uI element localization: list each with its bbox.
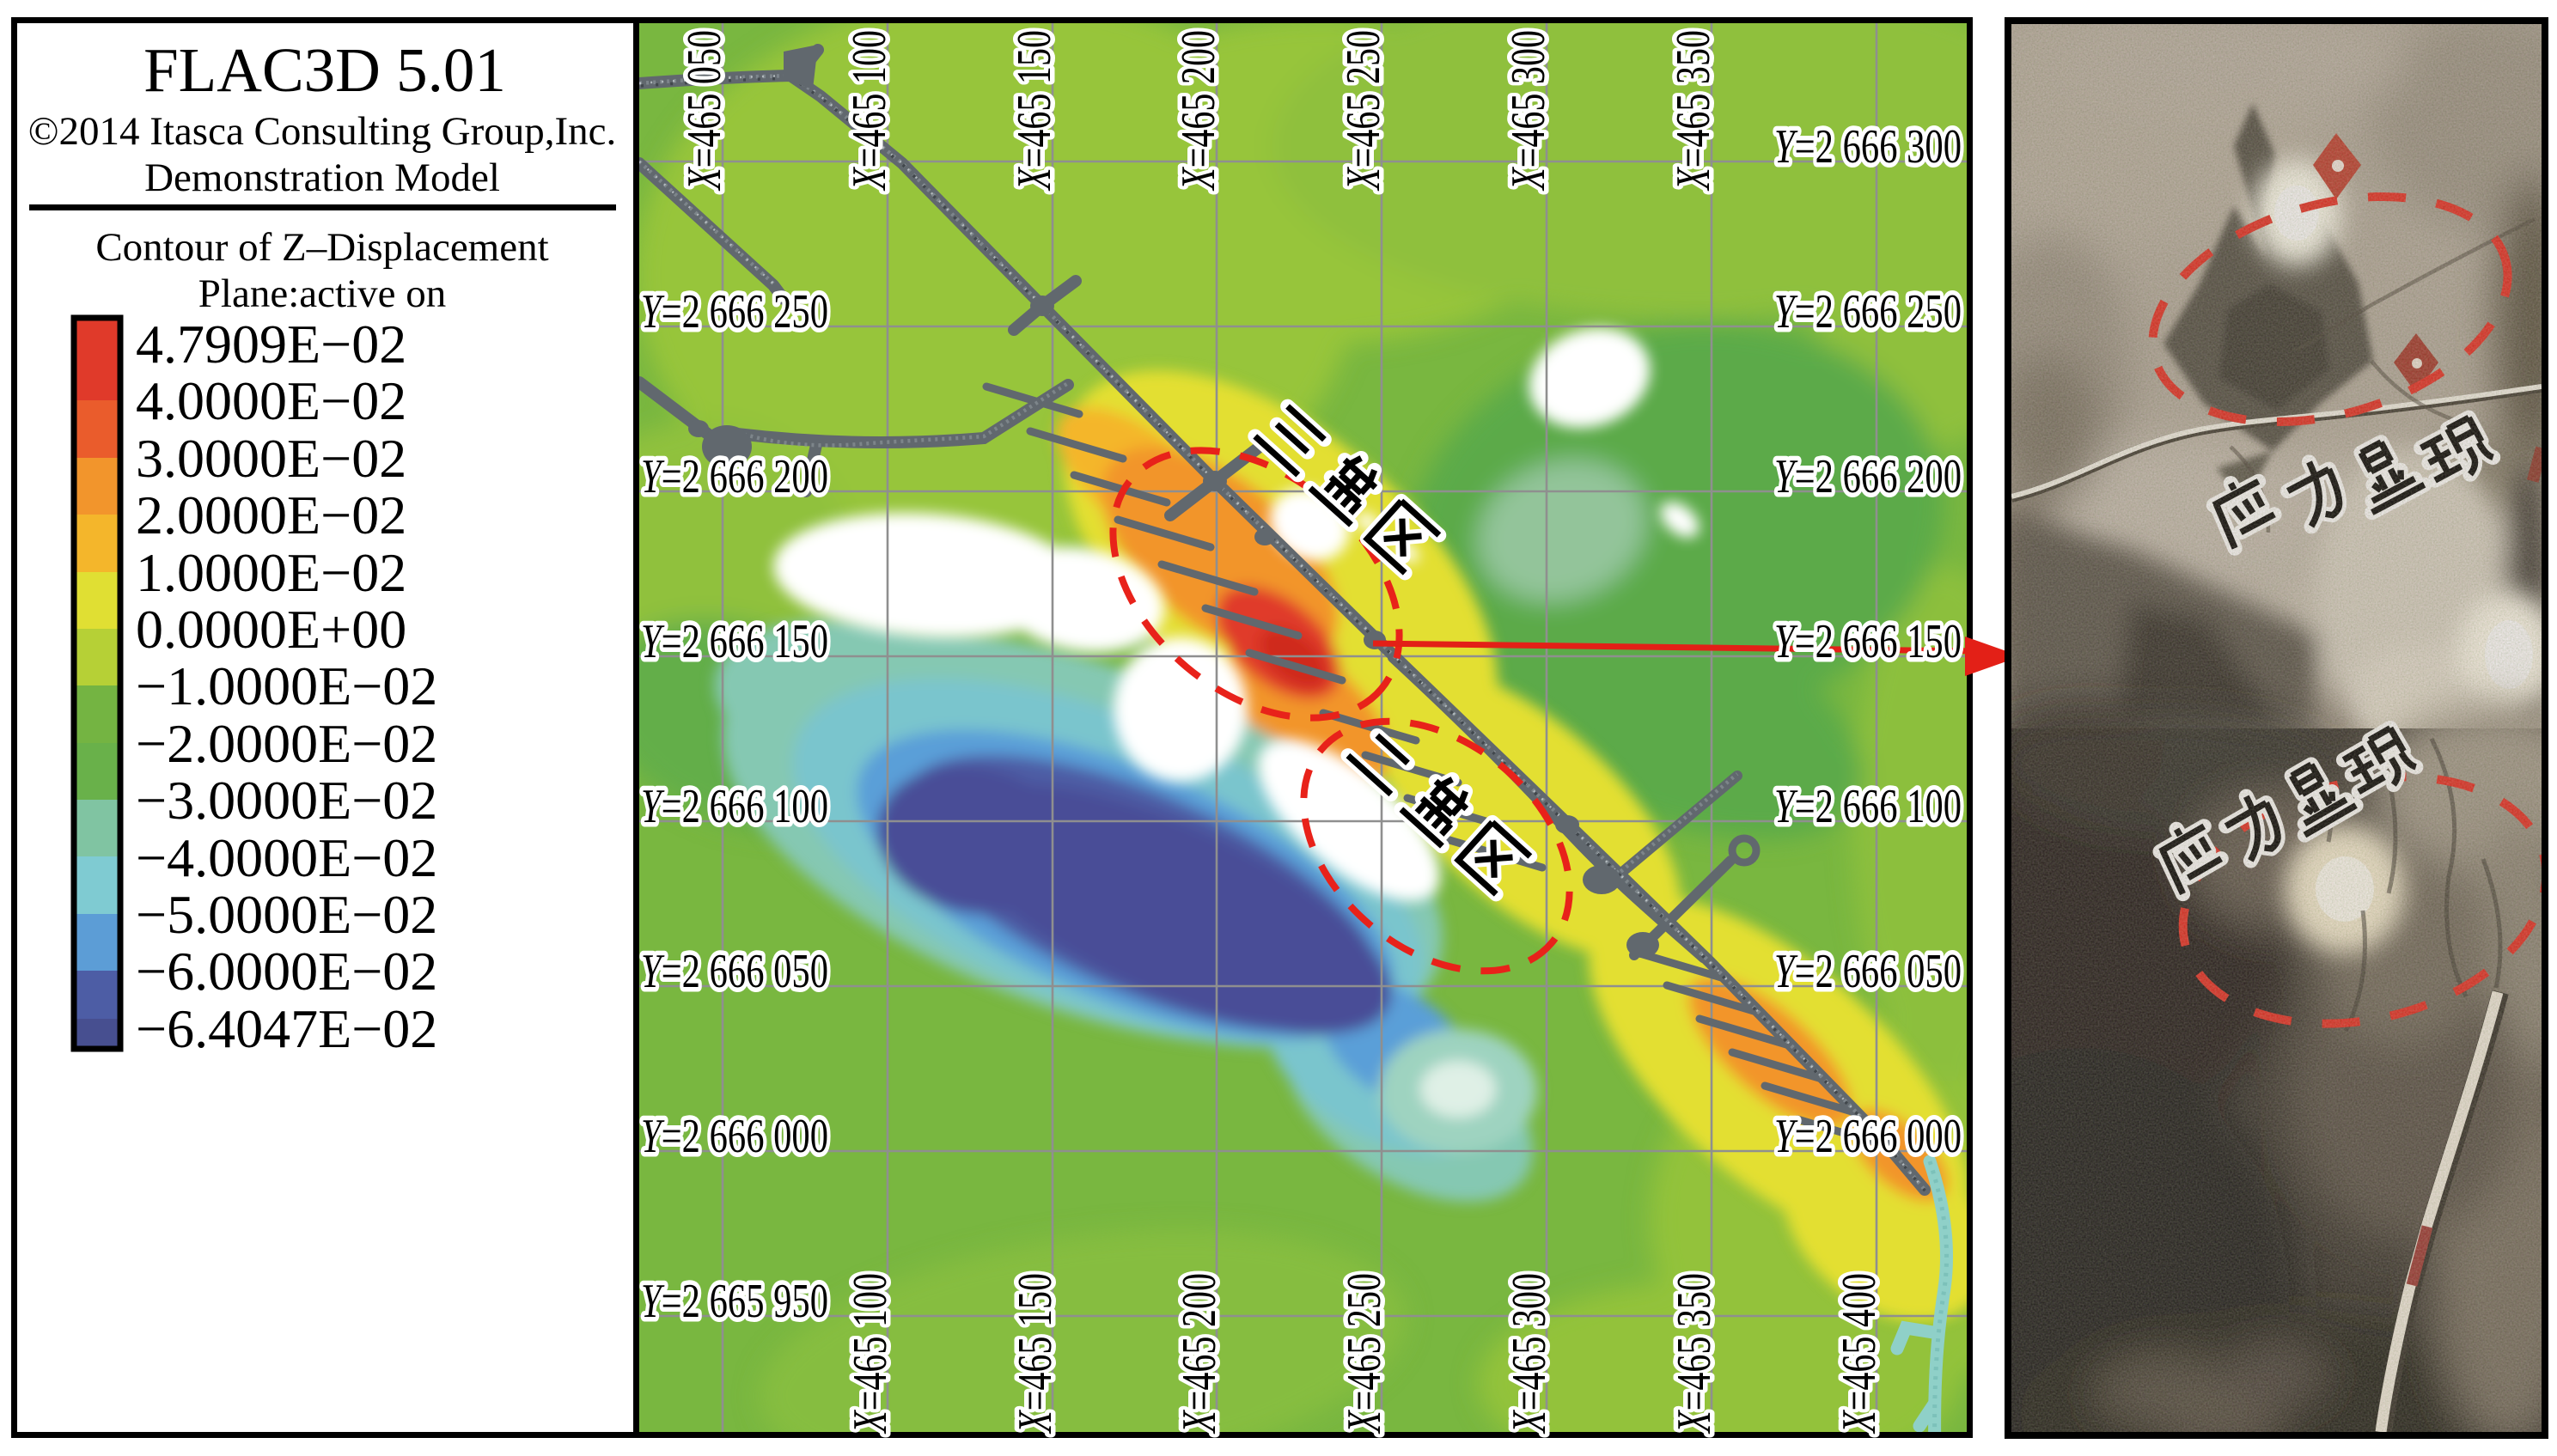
svg-text:Y=2 666 150: Y=2 666 150 [641, 615, 828, 668]
svg-text:X=465 300: X=465 300 [1503, 1273, 1556, 1435]
svg-text:X=465 200: X=465 200 [1172, 30, 1225, 192]
svg-text:2.0000E−02: 2.0000E−02 [136, 484, 406, 545]
svg-text:X=465 300: X=465 300 [1502, 30, 1555, 192]
svg-text:Y=2 666 300: Y=2 666 300 [1774, 120, 1962, 174]
svg-text:X=465 150: X=465 150 [1009, 1273, 1062, 1435]
svg-text:X=465 050: X=465 050 [678, 30, 731, 192]
svg-text:Y=2 666 050: Y=2 666 050 [1774, 945, 1962, 998]
svg-text:X=465 150: X=465 150 [1008, 30, 1061, 192]
svg-text:4.0000E−02: 4.0000E−02 [136, 370, 406, 431]
svg-text:1.0000E−02: 1.0000E−02 [136, 542, 406, 603]
svg-text:Y=2 666 200: Y=2 666 200 [641, 450, 828, 503]
svg-text:Contour of Z–Displacement: Contour of Z–Displacement [95, 225, 548, 270]
svg-text:FLAC3D 5.01: FLAC3D 5.01 [143, 35, 506, 105]
svg-text:−5.0000E−02: −5.0000E−02 [136, 884, 437, 945]
svg-text:−2.0000E−02: −2.0000E−02 [136, 713, 437, 774]
svg-text:Y=2 666 250: Y=2 666 250 [1774, 285, 1962, 338]
svg-text:Y=2 666 100: Y=2 666 100 [1774, 780, 1962, 833]
svg-text:0.0000E+00: 0.0000E+00 [136, 599, 406, 660]
svg-text:X=465 350: X=465 350 [1668, 1273, 1721, 1435]
svg-text:X=465 250: X=465 250 [1338, 1273, 1391, 1435]
svg-text:X=465 100: X=465 100 [843, 30, 896, 192]
svg-text:Y=2 666 000: Y=2 666 000 [641, 1110, 828, 1163]
svg-text:Y=2 666 200: Y=2 666 200 [1774, 450, 1962, 503]
svg-text:Plane:active on: Plane:active on [198, 271, 446, 316]
svg-text:X=465 350: X=465 350 [1667, 30, 1720, 192]
svg-text:4.7909E−02: 4.7909E−02 [136, 314, 406, 375]
svg-text:Y=2 666 050: Y=2 666 050 [641, 945, 828, 998]
svg-text:©2014 Itasca Consulting Group,: ©2014 Itasca Consulting Group,Inc. [28, 109, 616, 154]
svg-text:3.0000E−02: 3.0000E−02 [136, 428, 406, 489]
svg-text:Y=2 666 000: Y=2 666 000 [1774, 1110, 1962, 1163]
svg-text:X=465 250: X=465 250 [1337, 30, 1390, 192]
svg-text:X=465 100: X=465 100 [844, 1273, 897, 1435]
svg-text:−4.0000E−02: −4.0000E−02 [136, 827, 437, 888]
svg-text:Y=2 666 150: Y=2 666 150 [1774, 615, 1962, 668]
svg-text:Y=2 666 250: Y=2 666 250 [641, 285, 828, 338]
svg-text:X=465 200: X=465 200 [1173, 1273, 1226, 1435]
svg-text:−6.0000E−02: −6.0000E−02 [136, 941, 437, 1002]
svg-text:−6.4047E−02: −6.4047E−02 [136, 998, 437, 1059]
svg-text:X=465 400: X=465 400 [1833, 1273, 1886, 1435]
svg-text:−3.0000E−02: −3.0000E−02 [136, 770, 437, 831]
svg-text:Y=2 666 100: Y=2 666 100 [641, 780, 828, 833]
svg-text:Demonstration Model: Demonstration Model [144, 155, 500, 200]
svg-text:Y=2 665 950: Y=2 665 950 [641, 1275, 828, 1328]
svg-text:−1.0000E−02: −1.0000E−02 [136, 655, 437, 716]
